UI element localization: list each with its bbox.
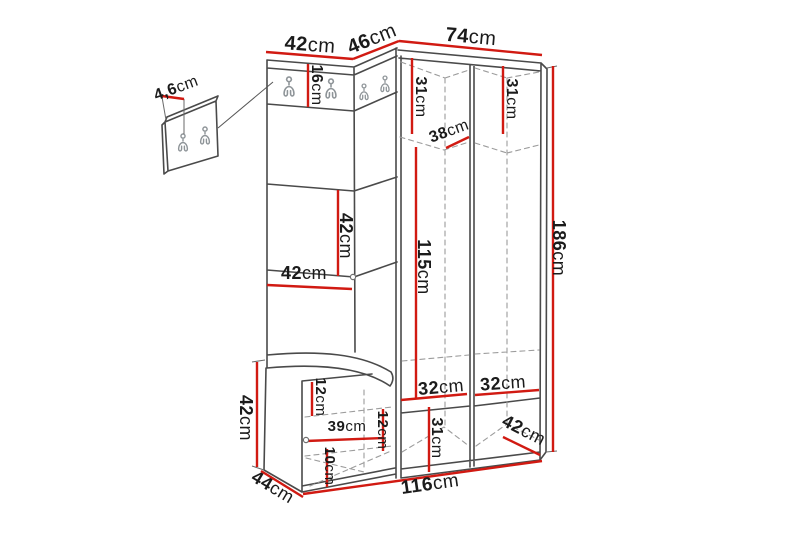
joint-dot [303,437,308,442]
dim-label-top-shelf-depth-right: 31cm [504,78,521,119]
joint-dot [350,274,355,279]
dim-label-bench-inner-width: 39cm [328,418,367,435]
dim-label-hanging-space-height: 115cm [414,239,434,295]
dim-label-total-width: 116cm [400,470,461,499]
dim-line-bench-inner-width [306,438,384,441]
dim-label-bench-height: 42cm [236,395,256,441]
coat-hook-icon [360,84,368,100]
extension-lines [162,66,557,470]
dim-label-open-shelf-section-height: 42cm [336,213,356,259]
dim-label-top-width-wardrobe: 74cm [445,24,498,50]
dim-line-open-shelf-width [267,285,352,289]
dim-label-bench-top-section-height: 12cm [313,378,330,417]
dim-label-open-shelf-width: 42cm [281,263,327,283]
dimension-annotations: 42cm46cm74cm4,6cm16cm31cm31cm38cm115cm42… [151,19,569,507]
dim-label-wardrobe-depth: 42cm [499,411,549,450]
dim-label-bench-depth: 44cm [248,467,298,508]
diagram-canvas: 42cm46cm74cm4,6cm16cm31cm31cm38cm115cm42… [0,0,800,533]
coat-hook-icon [326,79,336,98]
dim-label-bench-bottom-section-height: 10cm [322,447,339,486]
dim-label-wardrobe-inner-width-left: 32cm [417,375,465,399]
coat-hook-icon [381,76,389,92]
dim-label-top-shelf-depth-left: 31cm [413,76,430,117]
dim-label-bench-right-section-height: 12cm [375,411,392,450]
detail-leader-line [218,82,273,128]
dim-label-wardrobe-inner-width-right: 32cm [479,371,526,394]
dimension-labels: 42cm46cm74cm4,6cm16cm31cm31cm38cm115cm42… [151,19,569,507]
dim-label-top-shelf-width: 38cm [427,116,471,146]
dimension-diagram: 42cm46cm74cm4,6cm16cm31cm31cm38cm115cm42… [0,0,800,533]
dim-label-hook-strip-height: 16cm [309,64,326,105]
dim-label-total-height: 186cm [549,220,569,277]
dim-label-bottom-compartment-height: 31cm [429,417,446,458]
coat-hook-icon [201,127,210,144]
dim-label-top-width-left-section: 42cm [284,32,336,57]
coat-hook-icon [179,134,188,151]
coat-hook-icon [284,77,294,96]
